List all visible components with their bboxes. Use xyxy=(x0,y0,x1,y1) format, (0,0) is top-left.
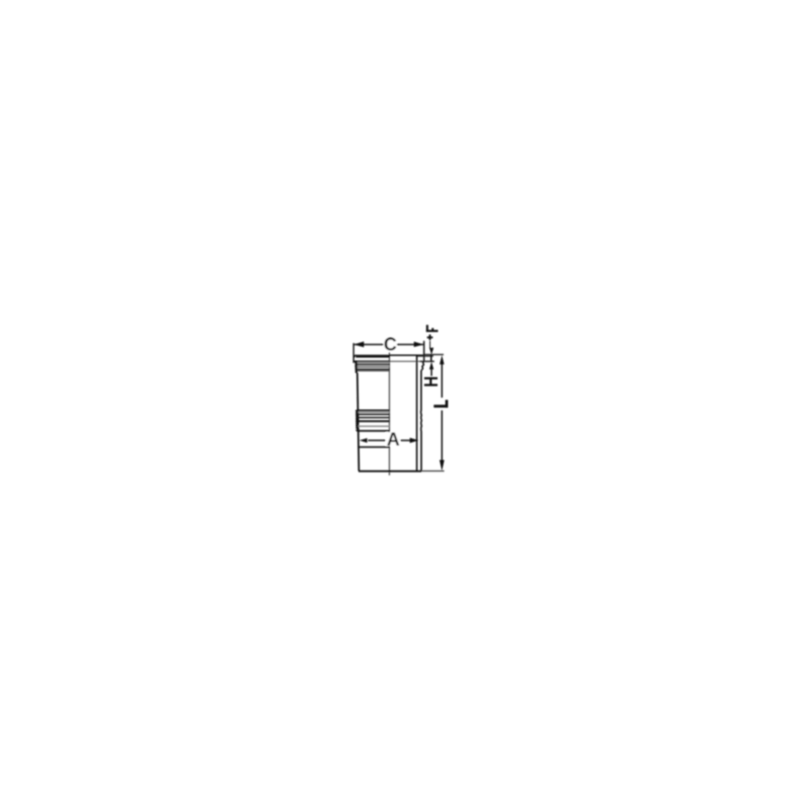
svg-text:A: A xyxy=(387,429,400,449)
svg-text:C: C xyxy=(384,335,397,355)
